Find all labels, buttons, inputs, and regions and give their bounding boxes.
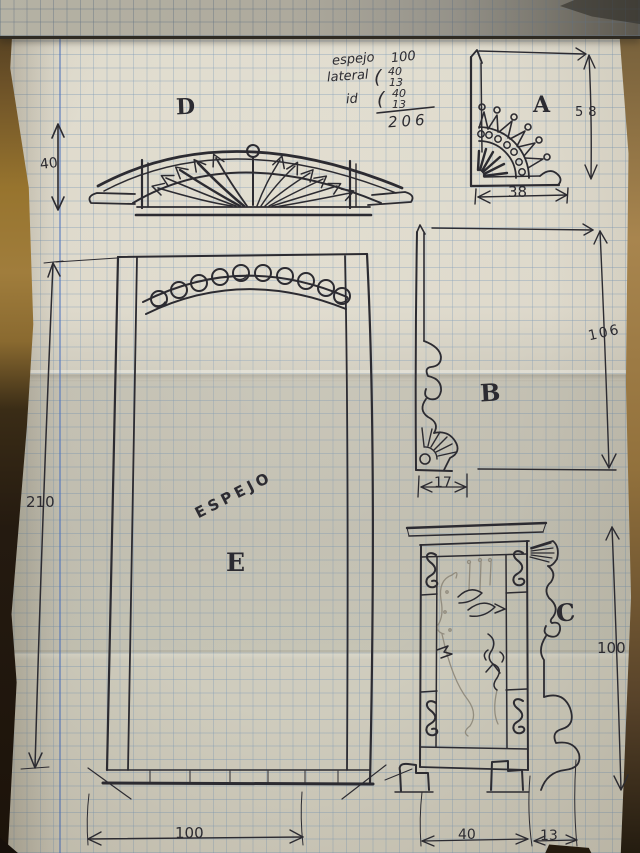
right-profile	[530, 541, 579, 790]
feet	[385, 761, 529, 792]
detail-c-cabinet	[385, 523, 628, 846]
ink-carving-leaves	[437, 590, 505, 690]
note-espejo-value: 100	[390, 49, 416, 67]
detail-a-corner	[471, 48, 597, 204]
dim-c-width: 40	[458, 827, 476, 843]
note-id-brace: (	[377, 88, 384, 110]
note-total: 206	[387, 111, 429, 132]
dim-a-width: 38	[508, 183, 527, 201]
dim-d-height: 40	[39, 155, 59, 173]
detail-b-pilaster	[416, 224, 616, 497]
ink-sketch	[0, 0, 640, 853]
dim-210-arrow	[21, 258, 117, 769]
label-c: C	[555, 597, 577, 628]
label-e: E	[226, 548, 245, 577]
mirror-e-elevation	[21, 254, 386, 845]
photo-of-hand-drawn-sketch: espejo 100 lateral ( 40 13 id ( 40 13 20…	[0, 0, 640, 853]
dim-e-height: 210	[26, 493, 55, 511]
note-lateral-label: lateral	[327, 68, 370, 86]
detail-d-crest	[52, 124, 413, 215]
dim-e-width: 100	[175, 824, 204, 842]
note-id-label: id	[345, 92, 358, 108]
note-lateral-brace: (	[374, 66, 381, 88]
dim-c-foot: 13	[540, 828, 558, 844]
label-a: A	[533, 92, 550, 118]
dim-100c-arrow	[606, 527, 628, 790]
dim-b-width: 17	[434, 475, 452, 491]
inner-petal-fan	[478, 149, 507, 176]
label-d: D	[176, 94, 196, 121]
label-b: B	[479, 377, 501, 407]
note-id-bottom: 13	[392, 98, 406, 111]
dim-c-height: 100	[597, 639, 626, 657]
s-scroll-ornaments	[426, 551, 524, 735]
dim-a-height: 58	[575, 105, 602, 120]
dim-106-arrow	[432, 224, 616, 470]
